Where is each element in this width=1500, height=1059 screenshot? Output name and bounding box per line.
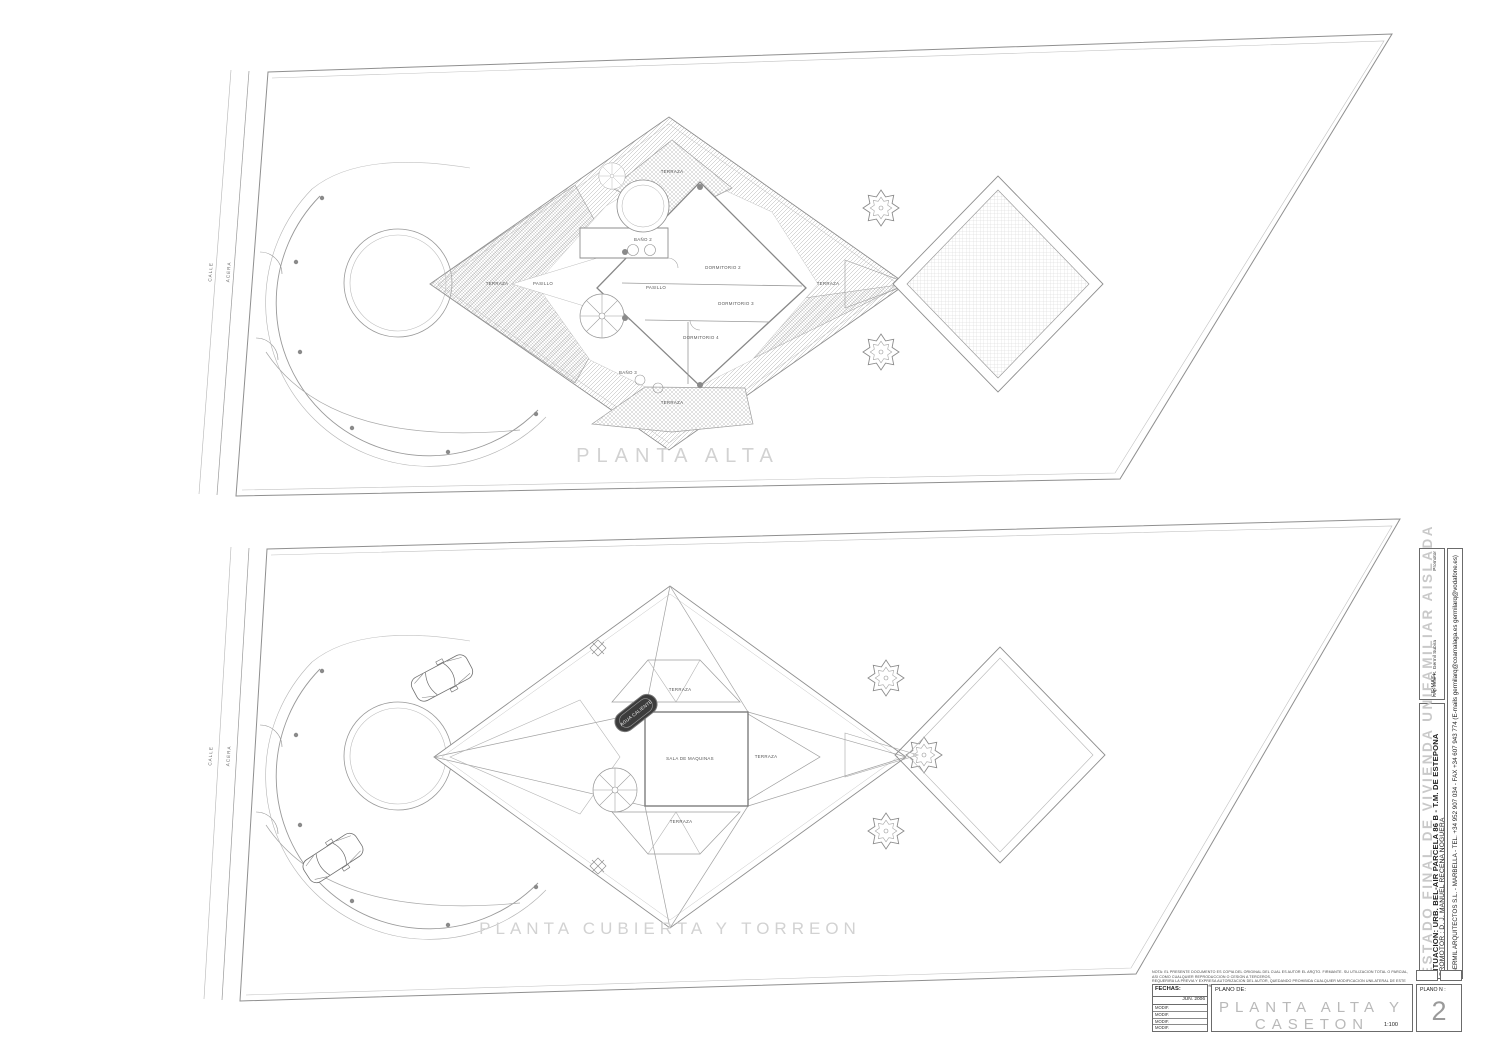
label-terraza-top-lower: TERRAZA	[669, 687, 692, 692]
label-calle-upper: CALLE	[207, 262, 213, 282]
project-info-box: ESTADO FINAL DE VIVIENDA UNIFAMILIAR AIS…	[1419, 703, 1445, 979]
label-terraza-bottom: TERRAZA	[661, 400, 684, 405]
upper-plan-title: PLANTA ALTA	[576, 445, 780, 467]
sheet-title: PLANTA ALTA Y CASETON	[1212, 999, 1412, 1033]
fechas-table: FECHAS: JUN. 2006 MODIF. MODIF. MODIF. M…	[1152, 984, 1208, 1032]
label-terraza-right-lower: TERRAZA	[755, 754, 778, 759]
modif-row: MODIF.	[1153, 1012, 1207, 1019]
architect-firm-line: GERMIL ARQUITECTOS S.L. - MARBELLA - TEL…	[1452, 553, 1459, 976]
label-bano2: BAÑO 2	[634, 237, 652, 242]
sheet-scale: 1:100	[1384, 1022, 1398, 1028]
lower-plan-title: PLANTA CUBIERTA Y TORREON	[479, 919, 861, 938]
legal-note-line1: NOTA: EL PRESENTE DOCUMENTO ES COPIA DEL…	[1152, 970, 1414, 979]
architect-firm-box: GERMIL ARQUITECTOS S.L. - MARBELLA - TEL…	[1447, 548, 1463, 979]
label-pasillo-left: PASILLO	[533, 281, 553, 286]
plano-n-box: PLANO N : 2	[1416, 984, 1462, 1032]
label-dormitorio4: DORMITORIO 4	[683, 335, 719, 340]
label-terraza-left: TERRAZA	[486, 281, 509, 286]
label-terraza-bottom-lower: TERRAZA	[670, 819, 693, 824]
upper-site-plan: TERRAZA TERRAZA TERRAZA TERRAZA PASILLO …	[199, 34, 1392, 496]
modif-row: MODIF.	[1153, 1025, 1207, 1031]
label-acera-upper: ACERA	[225, 261, 231, 282]
modif-row: MODIF.	[1153, 1005, 1207, 1012]
sheet-number: 2	[1417, 996, 1461, 1027]
drawing-sheet: TERRAZA TERRAZA TERRAZA TERRAZA PASILLO …	[0, 0, 1500, 1059]
label-pasillo-center: PASILLO	[646, 285, 666, 290]
label-bano3: BAÑO 3	[619, 370, 637, 375]
fecha-value: JUN. 2006	[1153, 997, 1207, 1005]
plano-de-box: PLANO DE: PLANTA ALTA Y CASETON 1:100	[1211, 984, 1413, 1032]
label-terraza-right: TERRAZA	[817, 281, 840, 286]
label-dormitorio3: DORMITORIO 3	[718, 301, 754, 306]
label-sala-maquinas: SALA DE MAQUINAS	[666, 756, 714, 761]
legal-side-cell-2	[1440, 970, 1462, 981]
plano-n-label: PLANO N :	[1420, 987, 1446, 993]
lower-site-plan: AGUA CALIENTE TERRAZA SALA DE MAQUINAS T…	[204, 519, 1400, 1001]
modif-row: MODIF.	[1153, 1019, 1207, 1026]
label-acera-lower: ACERA	[225, 745, 231, 766]
legal-side-cell-1	[1416, 970, 1438, 981]
promotor-line: PROMOTOR : D. J. MANUEL RECENA NOGUERA	[1439, 817, 1446, 976]
plano-de-label: PLANO DE:	[1215, 987, 1246, 993]
label-terraza-top: TERRAZA	[661, 169, 684, 174]
site-plan-drawing: TERRAZA TERRAZA TERRAZA TERRAZA PASILLO …	[0, 0, 1500, 1059]
fechas-header: FECHAS:	[1153, 985, 1207, 997]
label-dormitorio2: DORMITORIO 2	[705, 265, 741, 270]
label-calle-lower: CALLE	[207, 746, 213, 766]
